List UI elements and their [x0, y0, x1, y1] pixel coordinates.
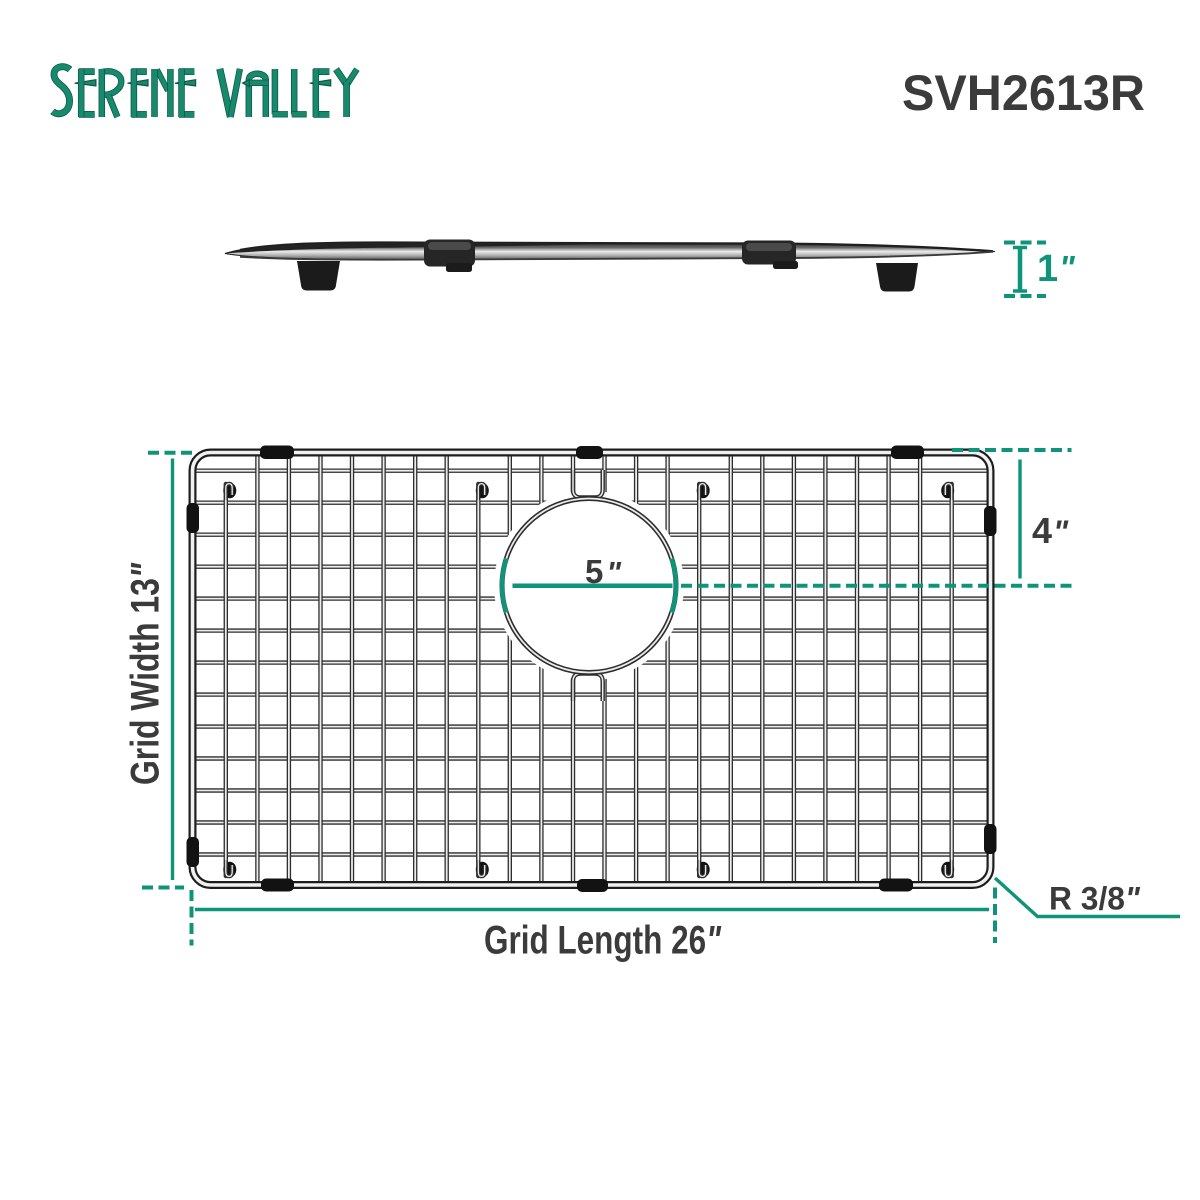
- svg-text:1": 1": [1037, 248, 1075, 290]
- svg-text:SVH2613R: SVH2613R: [902, 65, 1145, 121]
- svg-text:4": 4": [1032, 510, 1069, 551]
- svg-text:Grid Width 13": Grid Width 13": [124, 562, 168, 785]
- svg-text:Grid Length 26": Grid Length 26": [484, 919, 722, 963]
- svg-text:R 3/8": R 3/8": [1049, 881, 1141, 917]
